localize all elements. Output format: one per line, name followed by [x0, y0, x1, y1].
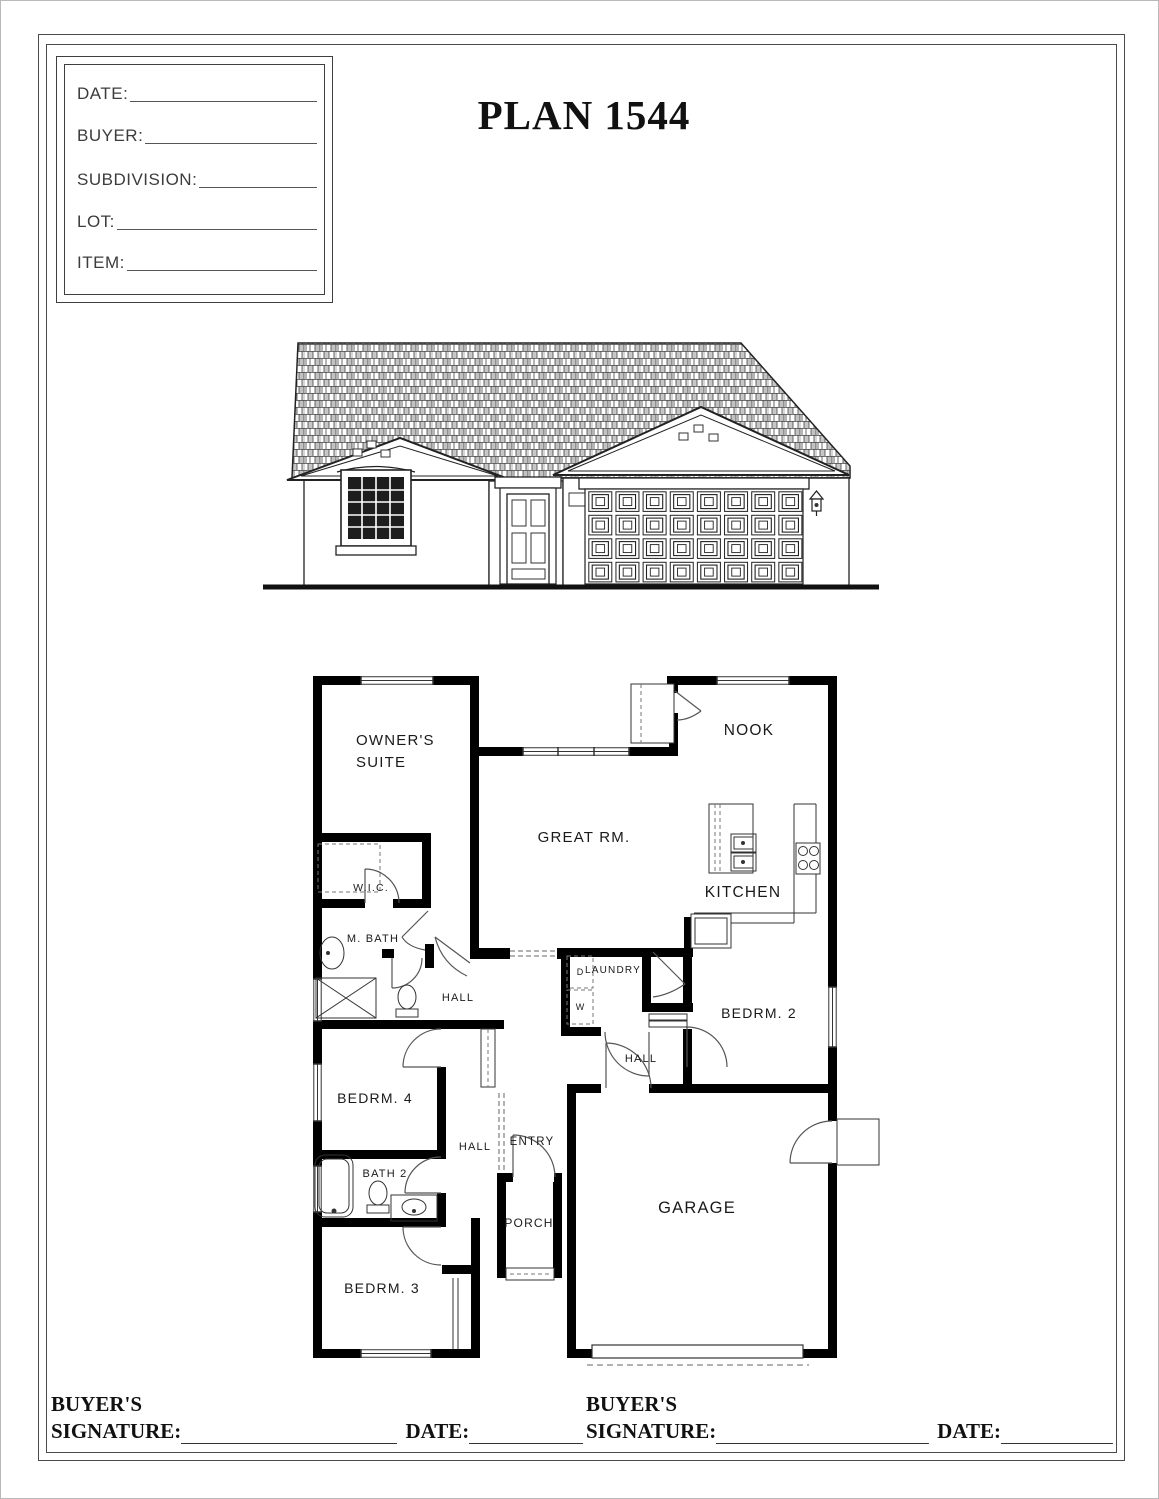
label-master-bath: M. BATH [347, 933, 399, 945]
cooktop [796, 843, 820, 874]
garage-door-panel [670, 562, 693, 582]
garage-door-panel [725, 492, 748, 512]
window-bath2 [313, 1166, 322, 1212]
porch-steps [506, 1268, 554, 1280]
door-closet-pocket [653, 952, 685, 997]
plan-sheet: DATE: BUYER: SUBDIVISION: LOT: ITEM: PLA… [0, 0, 1159, 1499]
date-label-left: DATE: [405, 1419, 469, 1444]
garage-door-panel [589, 562, 612, 582]
master-bath-sink [320, 937, 344, 969]
garage-door-panel [725, 562, 748, 582]
garage-door-panel [670, 515, 693, 535]
door-bath2 [405, 1157, 441, 1193]
window-bedroom4 [313, 1064, 322, 1121]
garage-door-panel [725, 515, 748, 535]
great-room-opening [510, 951, 557, 956]
buyer-label-left: BUYER'S [51, 1392, 583, 1417]
door-pantry [675, 691, 701, 720]
date-line-left[interactable] [469, 1425, 583, 1444]
kitchen-island [709, 804, 756, 873]
address-plaque [569, 493, 587, 506]
label-hall-mid: HALL [625, 1053, 657, 1065]
bedroom2-closet-doors [649, 1014, 687, 1027]
label-bedroom4: BEDRM. 4 [337, 1090, 413, 1106]
door-garage-side [790, 1121, 832, 1163]
garage-door-panel [697, 562, 720, 582]
garage-door-panel [670, 492, 693, 512]
door-bedroom3 [403, 1227, 441, 1265]
door-swings [365, 691, 832, 1265]
garage-door-panel [589, 515, 612, 535]
door-great-room [435, 937, 470, 976]
window-great-room [523, 747, 629, 756]
door-bedroom4 [403, 1029, 441, 1067]
label-bedroom2: BEDRM. 2 [721, 1005, 797, 1021]
window-owner-suite [361, 676, 433, 685]
label-hall-lower: HALL [459, 1141, 491, 1153]
label-entry: ENTRY [510, 1136, 555, 1148]
garage-door-panel [779, 515, 802, 535]
garage-door-panel [697, 492, 720, 512]
shower [316, 978, 376, 1018]
label-nook: NOOK [724, 722, 774, 739]
garage-door-panel [616, 492, 639, 512]
bath2-sink [391, 1195, 437, 1221]
bedroom3-closet-doors [453, 1278, 458, 1349]
window-bedroom3 [361, 1349, 431, 1358]
window-bedroom2 [828, 987, 837, 1047]
garage-door-panel [752, 515, 775, 535]
elevation-front-door [495, 477, 561, 584]
label-garage: GARAGE [658, 1199, 736, 1217]
garage-door-panel [643, 492, 666, 512]
label-hall-upper: HALL [442, 992, 474, 1004]
label-wic: W.I.C. [353, 882, 389, 894]
garage-door-panel [616, 562, 639, 582]
signature-label-right: SIGNATURE: [586, 1419, 716, 1444]
master-toilet [396, 985, 418, 1017]
buyer-signature-block-right: BUYER'S SIGNATURE: DATE: [586, 1392, 1113, 1444]
label-washer: W [576, 1002, 585, 1012]
door-master-bath [402, 911, 428, 950]
window-nook [717, 676, 789, 685]
door-bedroom2 [687, 1027, 727, 1067]
garage-door-panel [779, 539, 802, 559]
label-porch: PORCH [504, 1216, 553, 1230]
garage-door-panel [697, 515, 720, 535]
front-elevation [263, 343, 879, 587]
door-toilet-room [392, 958, 422, 988]
garage-door-panel [589, 492, 612, 512]
architectural-drawing: OWNER'S SUITE GREAT RM. NOOK KITCHEN W.I… [1, 1, 1159, 1499]
date-line-right[interactable] [1001, 1425, 1113, 1444]
garage-door-panel [752, 539, 775, 559]
signature-line-right[interactable] [716, 1425, 929, 1444]
label-bedroom3: BEDRM. 3 [344, 1280, 420, 1296]
dishwasher [691, 914, 731, 948]
elevation-garage-door [579, 478, 809, 584]
label-laundry: LAUNDRY [585, 965, 641, 976]
garage-door-panel [616, 539, 639, 559]
label-dryer: D [577, 967, 584, 977]
label-owner-suite: OWNER'S [356, 732, 435, 749]
garage-side-landing [837, 1119, 879, 1165]
buyer-label-right: BUYER'S [586, 1392, 1113, 1417]
hall-entry-opening [499, 1093, 504, 1171]
garage-door-panel [697, 539, 720, 559]
garage-door-panel [752, 492, 775, 512]
label-owner-suite-2: SUITE [356, 754, 406, 771]
garage-door-panel [670, 539, 693, 559]
elevation-window [336, 467, 416, 556]
garage-door-panel [779, 562, 802, 582]
pantry [631, 684, 674, 743]
garage-door-panel [643, 515, 666, 535]
garage-door-panel [779, 492, 802, 512]
bath2-toilet [367, 1181, 389, 1213]
date-label-right: DATE: [937, 1419, 1001, 1444]
label-kitchen: KITCHEN [705, 884, 781, 901]
floor-plan: OWNER'S SUITE GREAT RM. NOOK KITCHEN W.I… [313, 676, 879, 1365]
garage-overhead-door [587, 1345, 809, 1365]
garage-door-panel [616, 515, 639, 535]
linen-closet [481, 1029, 495, 1087]
garage-door-panel [643, 539, 666, 559]
garage-door-panel [752, 562, 775, 582]
label-great-room: GREAT RM. [538, 829, 631, 846]
signature-label-left: SIGNATURE: [51, 1419, 181, 1444]
label-bath2: BATH 2 [363, 1168, 408, 1180]
door-garage-entry [606, 1043, 651, 1088]
buyer-signature-block-left: BUYER'S SIGNATURE: DATE: [51, 1392, 583, 1444]
signature-line-left[interactable] [181, 1425, 397, 1444]
garage-door-panel [643, 562, 666, 582]
garage-door-panel [589, 539, 612, 559]
garage-door-panel [725, 539, 748, 559]
